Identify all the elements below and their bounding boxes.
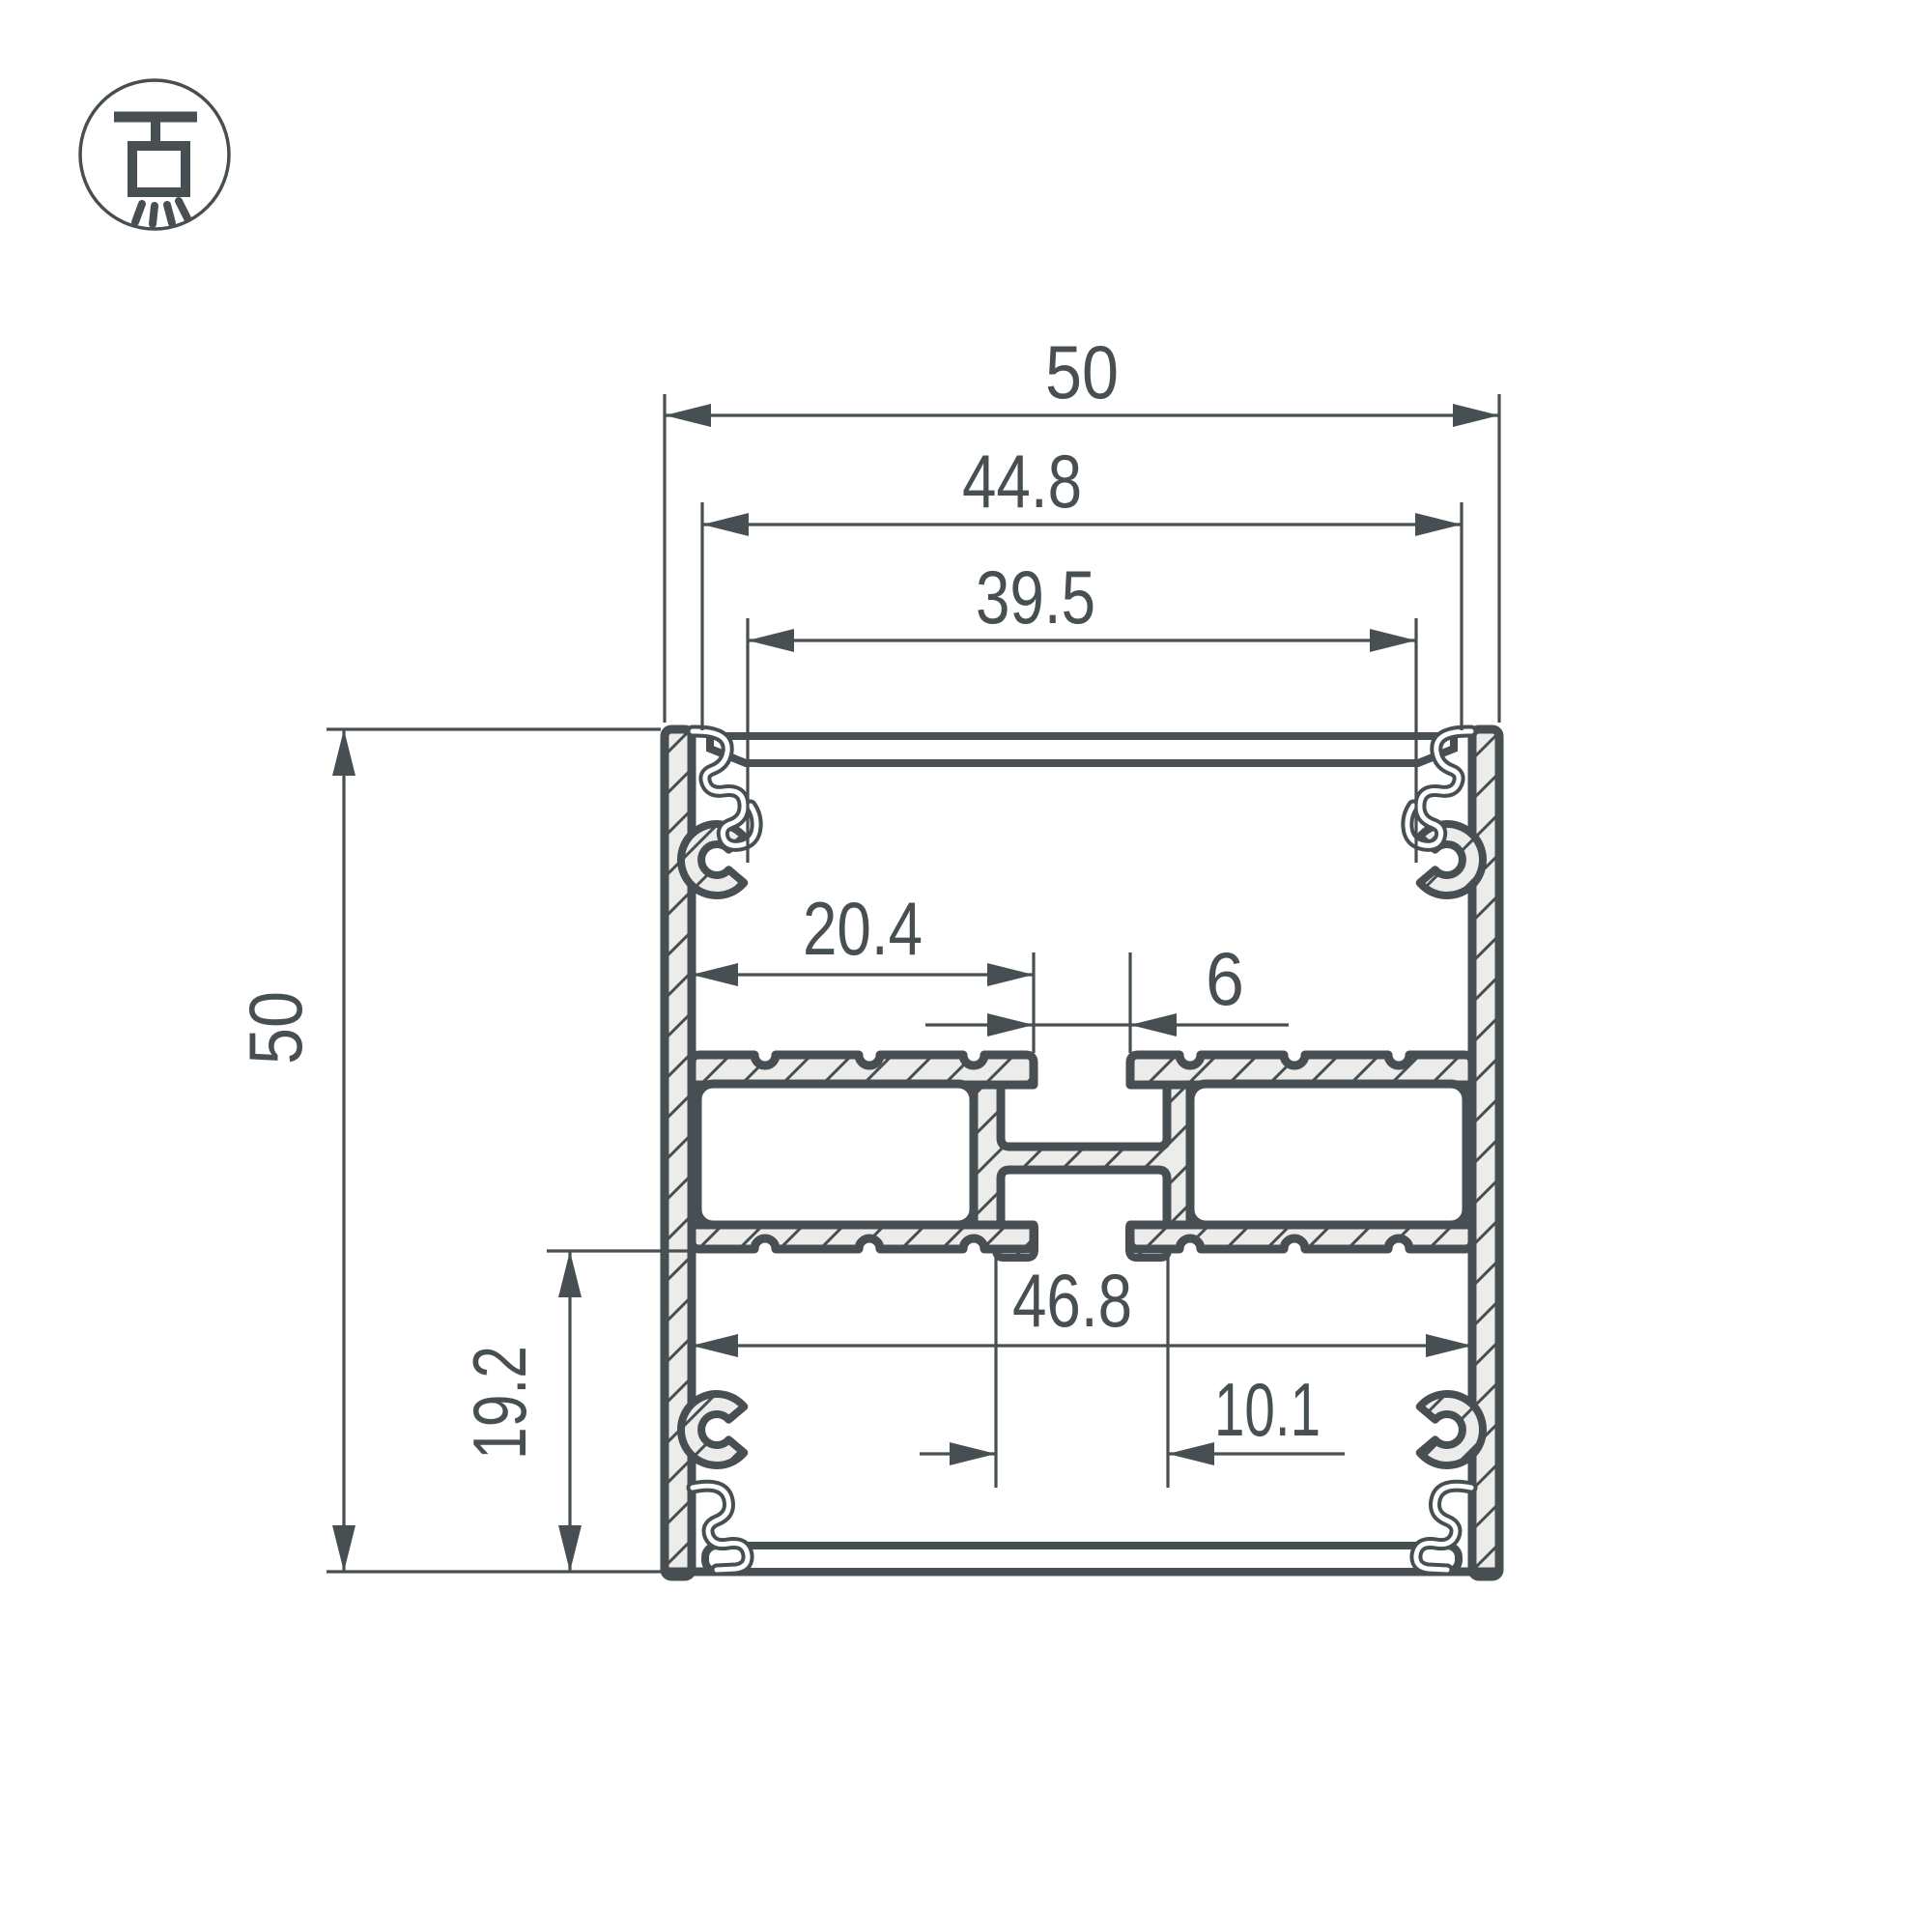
icon-lamp-box [132,146,185,192]
center-screw-channel [974,1085,1190,1225]
screw-boss-top-left [681,824,744,895]
dim-overall-height: 50 [233,729,661,1572]
dim-overall-height-label: 50 [233,991,318,1065]
dim-top-opening-width: 39.5 [748,554,1416,863]
dim-shelf-left-label: 20.4 [803,886,923,971]
screw-boss-top-right [1420,824,1483,895]
dim-top-inner-width-label: 44.8 [962,439,1082,524]
dim-bottom-offset: 19.2 [457,1251,692,1572]
middle-chamber-left [697,1084,974,1225]
dim-outer-width-label: 50 [1045,329,1119,414]
drawing-canvas: 50 44.8 39.5 50 [0,0,1932,1932]
pendant-ceiling-light-icon [80,80,229,229]
dim-top-opening-width-label: 39.5 [976,554,1095,639]
cover-plate [710,736,1454,763]
dim-center-slot-label: 6 [1206,936,1244,1021]
dim-lower-inner-width: 46.8 [692,1258,1472,1488]
dim-center-slot: 6 [925,936,1289,1053]
dim-center-channel-label: 10.1 [1214,1367,1321,1452]
dimensions: 50 44.8 39.5 50 [233,329,1499,1572]
screw-boss-bottom-right [1420,1394,1483,1465]
screw-boss-bottom-left [681,1394,744,1465]
dim-lower-inner-width-label: 46.8 [1012,1258,1132,1343]
profile-cross-section [665,729,1499,1577]
dim-shelf-left: 20.4 [692,886,1034,1053]
middle-chamber-right [1190,1084,1466,1225]
bottom-plate [705,1546,1459,1572]
icon-light-rays [135,201,187,224]
technical-drawing: 50 44.8 39.5 50 [0,0,1932,1932]
dim-center-channel: 10.1 [920,1367,1345,1465]
dim-bottom-offset-label: 19.2 [457,1346,542,1460]
